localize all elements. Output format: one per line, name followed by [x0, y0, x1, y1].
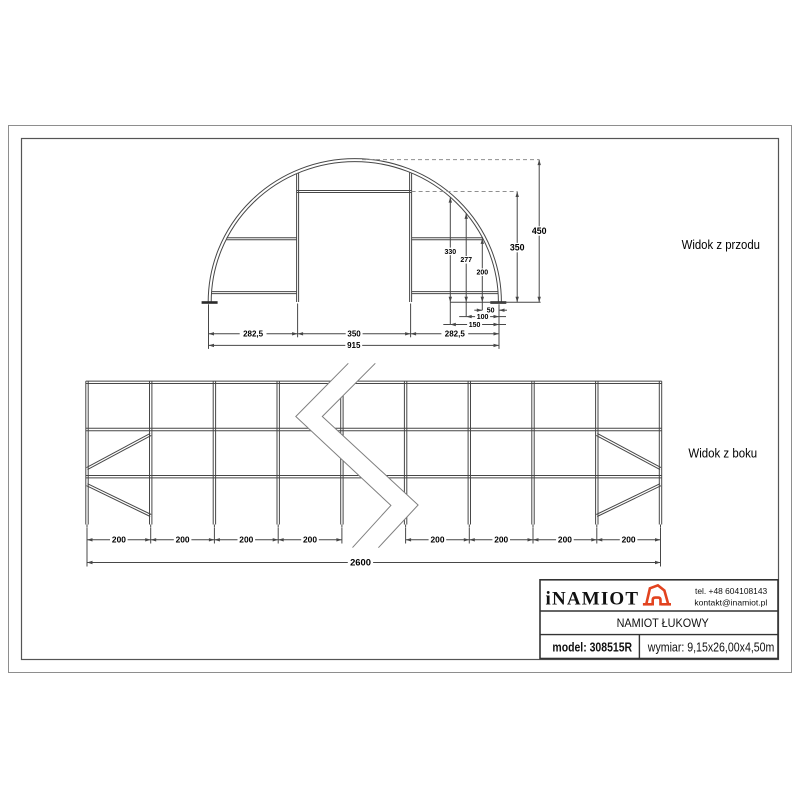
svg-text:450: 450: [532, 226, 547, 236]
svg-text:200: 200: [622, 535, 636, 545]
svg-text:iNAMIOT: iNAMIOT: [546, 588, 639, 609]
svg-text:Widok z boku: Widok z boku: [688, 446, 757, 461]
svg-text:200: 200: [494, 535, 508, 545]
svg-text:200: 200: [558, 535, 572, 545]
svg-text:915: 915: [347, 341, 361, 350]
svg-text:wymiar: 9,15x26,00x4,50m: wymiar: 9,15x26,00x4,50m: [647, 640, 774, 654]
svg-text:Widok z przodu: Widok z przodu: [682, 237, 760, 252]
svg-text:282,5: 282,5: [243, 330, 264, 339]
svg-text:2600: 2600: [350, 557, 371, 568]
svg-text:model: 308515R: model: 308515R: [552, 640, 632, 654]
svg-text:tel. +48 604108143: tel. +48 604108143: [695, 586, 768, 596]
svg-text:350: 350: [347, 330, 361, 339]
svg-text:277: 277: [460, 257, 472, 264]
svg-text:NAMIOT ŁUKOWY: NAMIOT ŁUKOWY: [617, 616, 709, 630]
svg-text:kontakt@inamiot.pl: kontakt@inamiot.pl: [694, 598, 767, 608]
svg-text:282,5: 282,5: [445, 330, 466, 339]
svg-text:200: 200: [112, 535, 126, 545]
svg-text:200: 200: [176, 535, 190, 545]
svg-text:200: 200: [431, 535, 445, 545]
svg-text:100: 100: [477, 314, 489, 321]
svg-text:200: 200: [303, 535, 317, 545]
svg-text:350: 350: [510, 243, 525, 253]
svg-text:200: 200: [239, 535, 253, 545]
svg-text:150: 150: [469, 322, 481, 329]
svg-text:330: 330: [444, 249, 456, 256]
svg-text:200: 200: [476, 270, 488, 277]
